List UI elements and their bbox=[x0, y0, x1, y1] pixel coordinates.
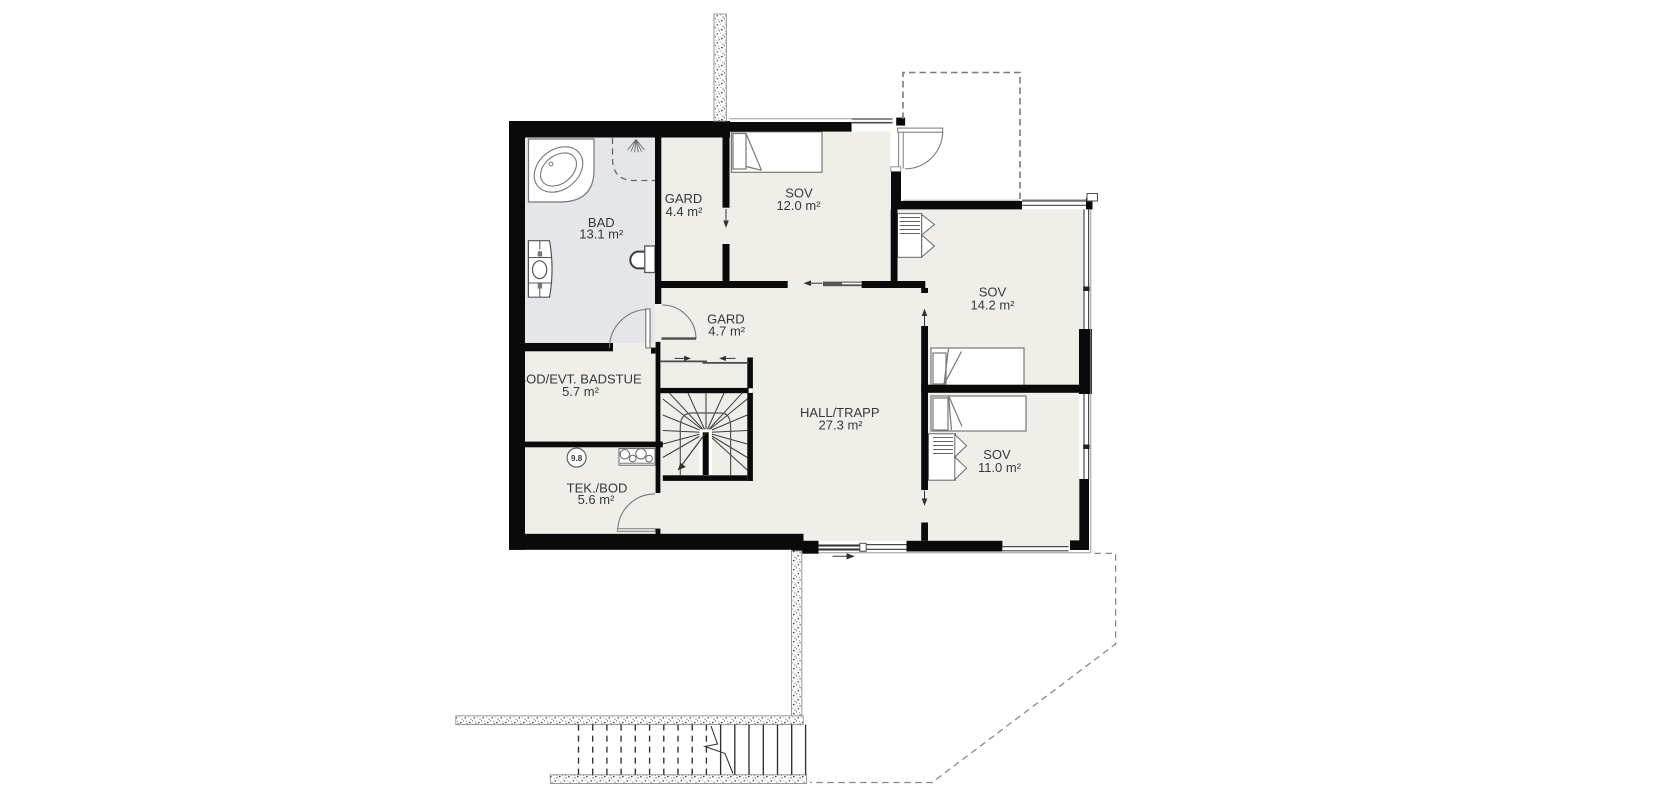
svg-text:13.1 m²: 13.1 m² bbox=[579, 227, 624, 242]
svg-text:9.8: 9.8 bbox=[571, 454, 583, 463]
svg-text:4.7 m²: 4.7 m² bbox=[708, 324, 746, 339]
svg-text:5.6 m²: 5.6 m² bbox=[578, 492, 616, 507]
svg-text:11.0 m²: 11.0 m² bbox=[978, 460, 1022, 475]
svg-text:27.3 m²: 27.3 m² bbox=[819, 418, 864, 433]
svg-text:4.4 m²: 4.4 m² bbox=[666, 204, 704, 219]
svg-text:12.0 m²: 12.0 m² bbox=[776, 198, 821, 213]
svg-text:5.7 m²: 5.7 m² bbox=[562, 384, 600, 399]
svg-text:14.2 m²: 14.2 m² bbox=[970, 298, 1015, 313]
